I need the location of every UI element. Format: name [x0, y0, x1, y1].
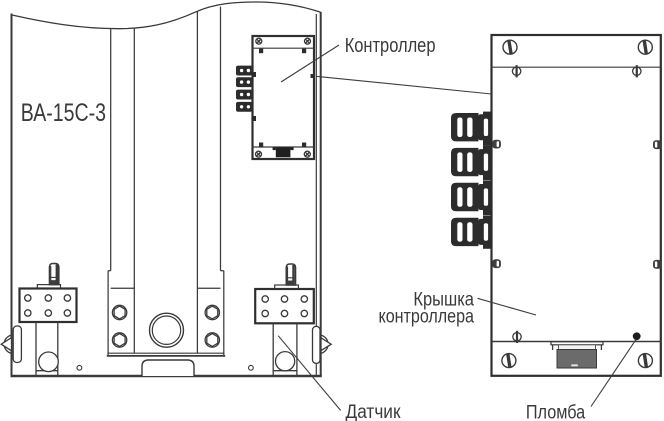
svg-text:Пломба: Пломба	[526, 403, 586, 421]
svg-text:ВА-15С-3: ВА-15С-3	[21, 99, 106, 127]
svg-text:Контроллер: Контроллер	[345, 35, 436, 57]
svg-text:Датчик: Датчик	[346, 402, 402, 421]
svg-text:контроллера: контроллера	[379, 307, 475, 328]
